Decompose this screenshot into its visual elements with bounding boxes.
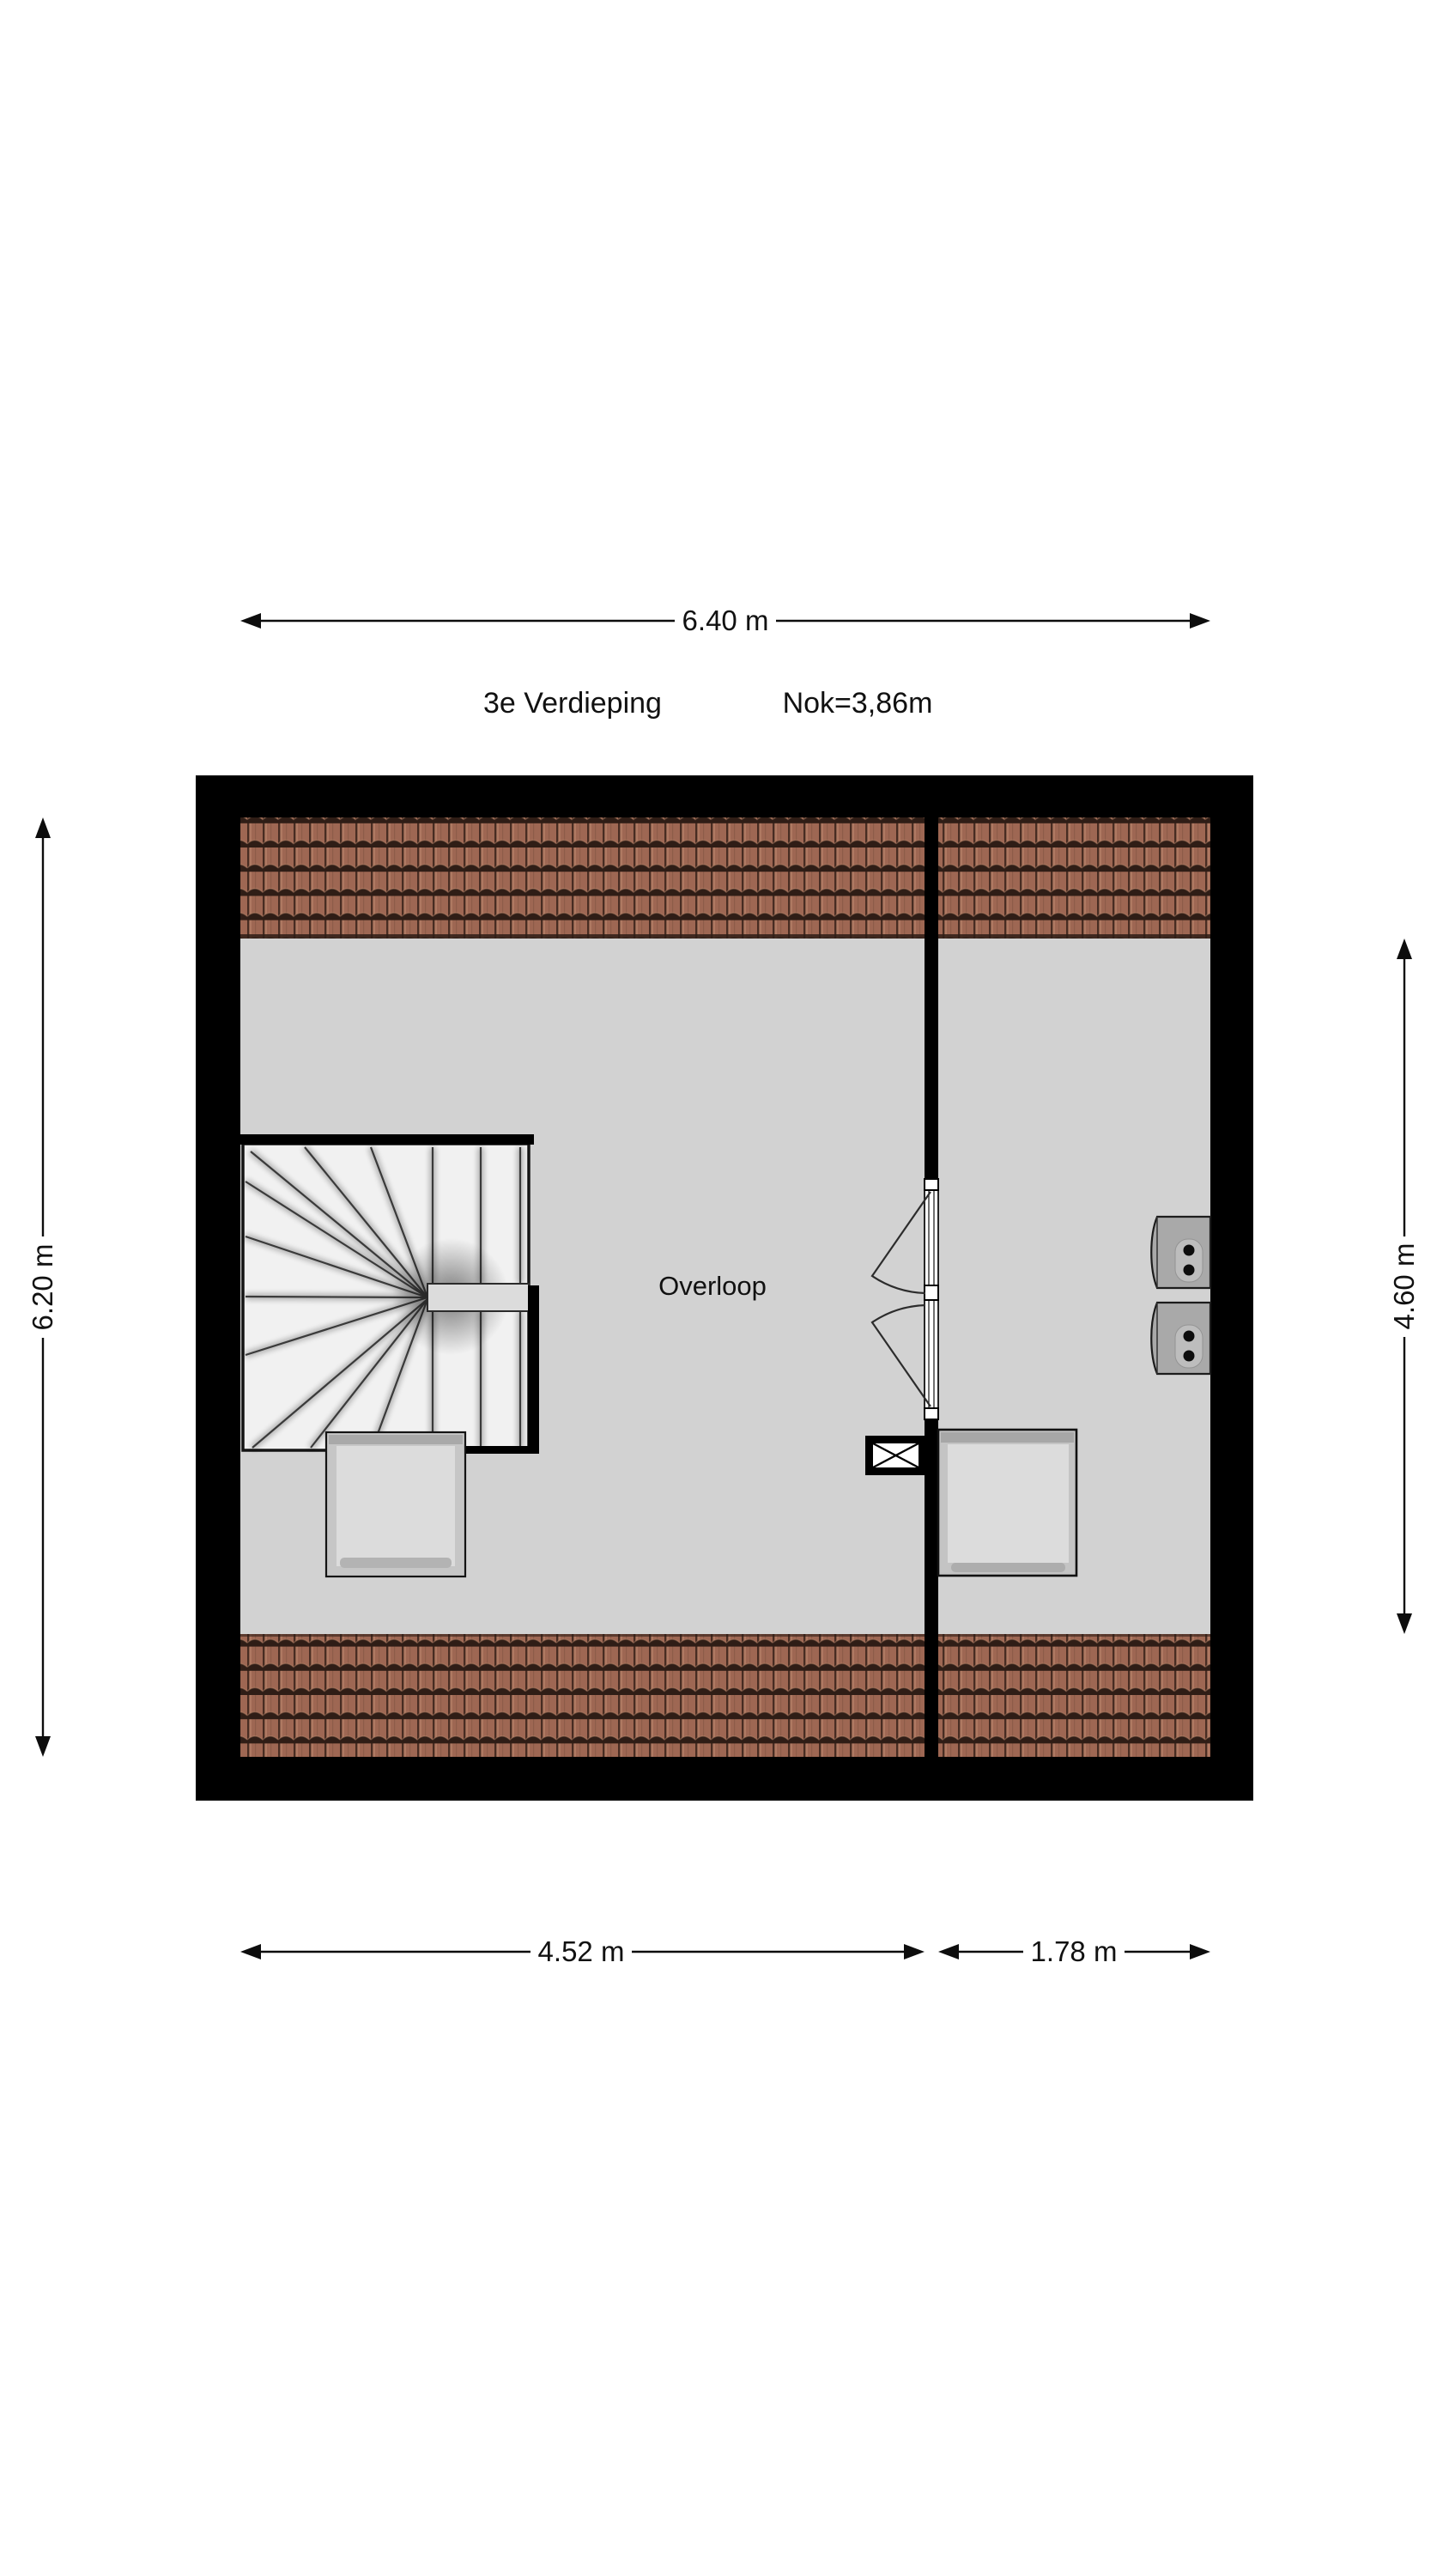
- unit-knob-icon: [1184, 1351, 1195, 1362]
- mechanical-unit-1: [1151, 1217, 1210, 1288]
- floorplan-page: 3e Verdieping Nok=3,86m: [0, 0, 1449, 2576]
- stair-landing: [427, 1284, 529, 1311]
- unit-knob-icon: [1184, 1331, 1195, 1342]
- stair-wall-top: [240, 1134, 534, 1145]
- floor-title: 3e Verdieping: [483, 687, 662, 720]
- room-label: Overloop: [658, 1271, 767, 1301]
- mechanical-unit-2: [1151, 1303, 1210, 1374]
- skylight-left: [326, 1432, 465, 1577]
- svg-text:6.40 m: 6.40 m: [682, 605, 769, 636]
- door-jamb-middle: [925, 1285, 938, 1300]
- roof-tiles-bottom: [240, 1634, 1210, 1757]
- door-jamb-bottom: [925, 1408, 938, 1419]
- unit-knob-icon: [1184, 1245, 1195, 1256]
- door-frame-top: [925, 1190, 938, 1285]
- skylight-right: [938, 1430, 1076, 1576]
- door-frame-bottom: [925, 1300, 938, 1408]
- staircase: [240, 1134, 539, 1454]
- floorplan-drawing: 3e Verdieping Nok=3,86m: [0, 0, 1449, 2576]
- chimney-shaft: [865, 1436, 925, 1475]
- stair-wall-right: [528, 1285, 539, 1454]
- stair-wall-bottom: [465, 1446, 539, 1454]
- roof-tiles-top: [240, 817, 1210, 939]
- svg-text:1.78 m: 1.78 m: [1031, 1935, 1118, 1967]
- door-jamb-top: [925, 1179, 938, 1190]
- svg-text:4.60 m: 4.60 m: [1388, 1243, 1420, 1330]
- svg-text:6.20 m: 6.20 m: [27, 1244, 58, 1331]
- ridge-label: Nok=3,86m: [783, 687, 933, 720]
- unit-knob-icon: [1184, 1265, 1195, 1276]
- svg-text:4.52 m: 4.52 m: [538, 1935, 625, 1967]
